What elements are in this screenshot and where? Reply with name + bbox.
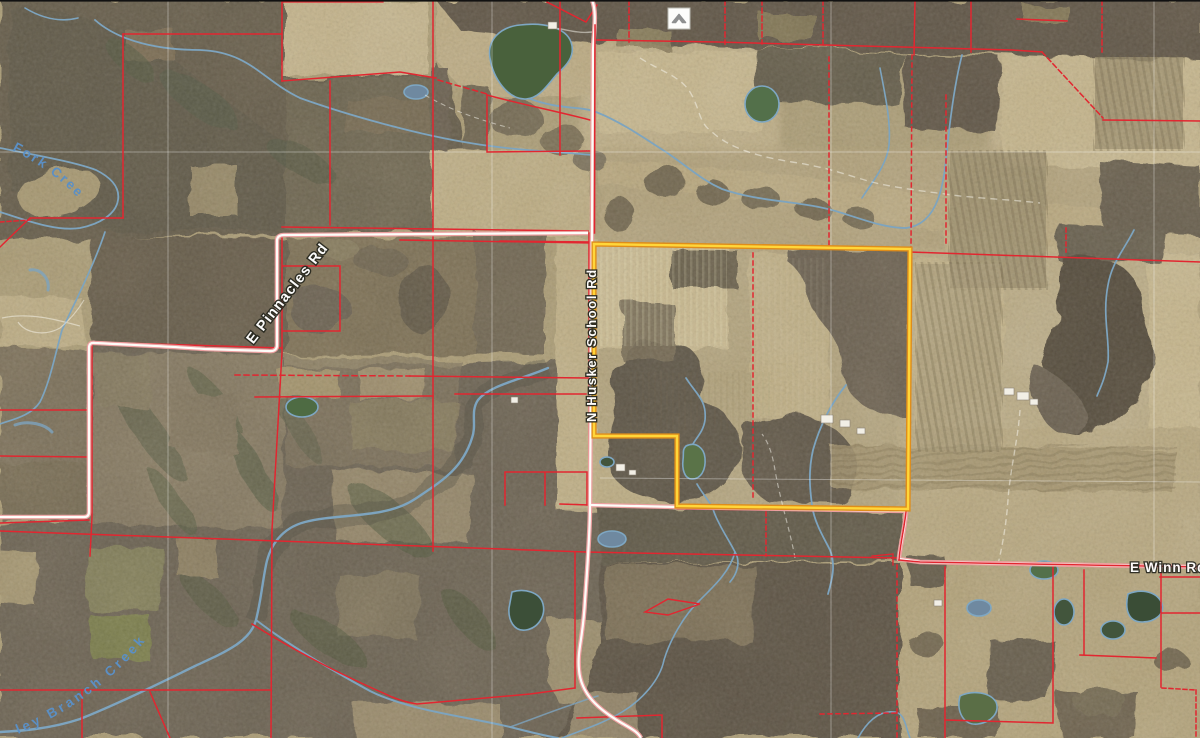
svg-text:E Winn Rd: E Winn Rd — [1130, 560, 1200, 575]
svg-text:N Husker School Rd: N Husker School Rd — [584, 268, 599, 422]
